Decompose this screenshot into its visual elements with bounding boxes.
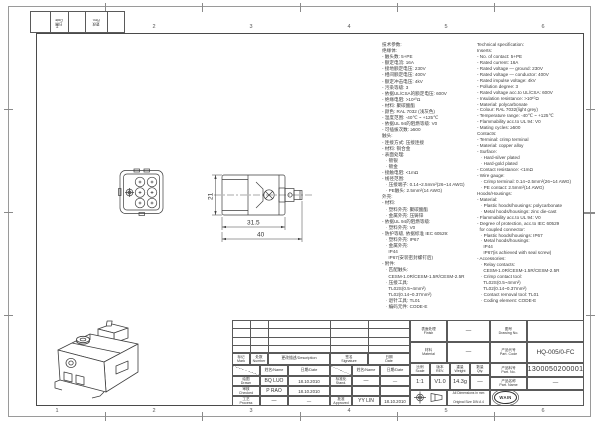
- projection-symbol-cell: [410, 390, 447, 407]
- revision-grid-line: [368, 320, 369, 353]
- zone-tick: [494, 412, 495, 421]
- zone-number-top: 3: [245, 24, 257, 30]
- contact-sockets: [135, 177, 157, 208]
- drawn-date: 18.10.2010: [288, 376, 330, 386]
- isometric-view-drawing: [42, 316, 160, 408]
- revision-grid-line: [232, 337, 410, 338]
- note-dimensions: All Dimensions in mm: [453, 391, 485, 395]
- zone-tick: [105, 412, 106, 421]
- zone-tick: [494, 3, 495, 12]
- scale-label: 比例 Scale: [410, 363, 430, 375]
- zone-number-bottom: 5: [440, 408, 452, 414]
- revision-grid-line: [330, 320, 331, 353]
- approved-name: YY LIN: [352, 396, 380, 406]
- empty-cell: [330, 386, 352, 396]
- checked-label: 审核 Checked: [232, 386, 260, 396]
- standardized-label: 标准化 Stand.: [330, 376, 352, 386]
- zone-number-bottom: 2: [148, 408, 160, 414]
- spec-column-chinese: 技术参数:绝缘体:- 触头数: 5+PE- 额定电流: 16A- 接地额定电压:…: [382, 42, 465, 310]
- part-code-value: HQ-005/0-FC: [527, 342, 584, 364]
- corner-block-line: [107, 11, 108, 33]
- rev-header-signature: 签名 Signature: [330, 353, 368, 365]
- process-name: —: [260, 396, 288, 406]
- insert-outline: [124, 174, 160, 210]
- zone-number-top: 5: [440, 24, 452, 30]
- rev-header-mark: 标记 Mark: [232, 353, 250, 365]
- zone-tick: [586, 315, 595, 316]
- standardized-date: —: [380, 376, 410, 386]
- corner-rev-label: 更改 Rev.: [85, 11, 107, 33]
- rev-header-number: 处数 Number: [250, 353, 268, 365]
- standardized-name: —: [352, 376, 380, 386]
- zone-tick: [4, 315, 13, 316]
- process-date: —: [288, 396, 330, 406]
- zone-number-top: 6: [537, 24, 549, 30]
- part-code-label: 产品代号 Part. Code: [490, 342, 527, 364]
- weight-value: 14.3g: [450, 375, 470, 390]
- zone-tick: [4, 109, 13, 110]
- dimension-label-outer-width: 40: [257, 232, 265, 239]
- part-no-label: 产品料号 Part. No.: [490, 363, 527, 377]
- projection-symbol: [412, 391, 445, 404]
- approved-date: 18.10.2010: [380, 396, 410, 406]
- zone-tick: [202, 3, 203, 12]
- drawn-label: 绘图 Drawn: [232, 376, 260, 386]
- pe-contact: [125, 188, 134, 197]
- spec-column-english: Technical specification:Inserts:- No. of…: [477, 42, 571, 304]
- zone-tick: [300, 3, 301, 12]
- front-view-drawing: [118, 168, 168, 218]
- part-no-value: 1300050200001: [527, 363, 584, 377]
- zone-number-bottom: 3: [245, 408, 257, 414]
- subheader-diagonal: [232, 365, 260, 377]
- wain-logo-text: WAIN: [499, 395, 511, 400]
- empty-cell: [352, 386, 380, 396]
- corner-block-line: [68, 11, 69, 33]
- zone-number-bottom: 1: [51, 408, 63, 414]
- corner-block: [30, 11, 125, 33]
- side-view-drawing: 21 31.5 40: [200, 158, 325, 253]
- wain-logo: WAIN: [494, 391, 517, 404]
- finish-value: —: [447, 320, 490, 342]
- dimension-label-inner-width: 31.5: [247, 220, 260, 227]
- rev-value: V1.0: [430, 375, 450, 390]
- iso-screw: [77, 336, 90, 344]
- dimension-label-height: 21: [208, 192, 215, 200]
- finish-label: 表面处理 Finish: [410, 320, 447, 342]
- zone-tick: [397, 3, 398, 12]
- company-cell: WAIN 厦门唯恩电气有限公司 XIAMEN WAIN ELECTRICAL C…: [490, 390, 584, 407]
- dimension-note-cell: All Dimensions in mm Original Size DIN A…: [447, 390, 490, 407]
- subheader-date-left: 日期/Date: [288, 365, 330, 377]
- material-value: —: [447, 342, 490, 364]
- revision-grid-line: [232, 345, 410, 346]
- drawing-no-value: [527, 320, 584, 342]
- zone-number-top: 4: [343, 24, 355, 30]
- zone-number-bottom: 6: [537, 408, 549, 414]
- checked-date: 18.10.2010: [288, 386, 330, 396]
- zone-number-top: 2: [148, 24, 160, 30]
- zone-tick: [300, 412, 301, 421]
- revision-grid-line: [268, 320, 269, 353]
- process-label: 工艺 Process: [232, 396, 260, 406]
- drawing-no-label: 图号 Drawing No.: [490, 320, 527, 342]
- coding-notch: [139, 213, 145, 216]
- zone-number-bottom: 4: [343, 408, 355, 414]
- zone-tick: [397, 412, 398, 421]
- part-name-label: 产品名称 Part. Name: [490, 377, 527, 390]
- subheader-name-right: 姓名/Name: [352, 365, 380, 377]
- zone-tick: [586, 109, 595, 110]
- rev-label: 版本 REV.: [430, 363, 450, 375]
- rev-header-date: 日期 Date: [368, 353, 410, 365]
- scale-value: 1:1: [410, 375, 430, 390]
- qty-label: 数量 Qty.: [470, 363, 490, 375]
- note-original-size: Original Size DIN A 4: [453, 400, 485, 404]
- rev-header-description: 更改描述/Description: [268, 353, 330, 365]
- corner-date-label: 日期 Date: [50, 11, 68, 33]
- part-name-value: —: [527, 377, 584, 390]
- subheader-date-right: 日期/Date: [380, 365, 410, 377]
- weight-label: 重量 Weight: [450, 363, 470, 375]
- checked-name: P RAO: [260, 386, 288, 396]
- material-label: 材料 Material: [410, 342, 447, 364]
- company-name-cn: 厦门唯恩电气有限公司: [521, 390, 583, 391]
- revision-grid-line: [232, 328, 410, 329]
- revision-grid-line: [250, 320, 251, 353]
- approved-label: 批准 Approved: [330, 396, 352, 406]
- subheader-diagonal: [330, 365, 352, 377]
- centering-mark: [584, 212, 595, 214]
- zone-tick: [202, 412, 203, 421]
- drawn-name: BQ LUO: [260, 376, 288, 386]
- drawing-sheet: 1 2 3 4 5 6 1 2 3 4 5 6 日期 Date 更改 Rev. …: [0, 0, 600, 424]
- qty-value: —: [470, 375, 490, 390]
- subheader-name-left: 姓名/Name: [260, 365, 288, 377]
- empty-cell: [380, 386, 410, 396]
- zone-tick: [4, 212, 13, 213]
